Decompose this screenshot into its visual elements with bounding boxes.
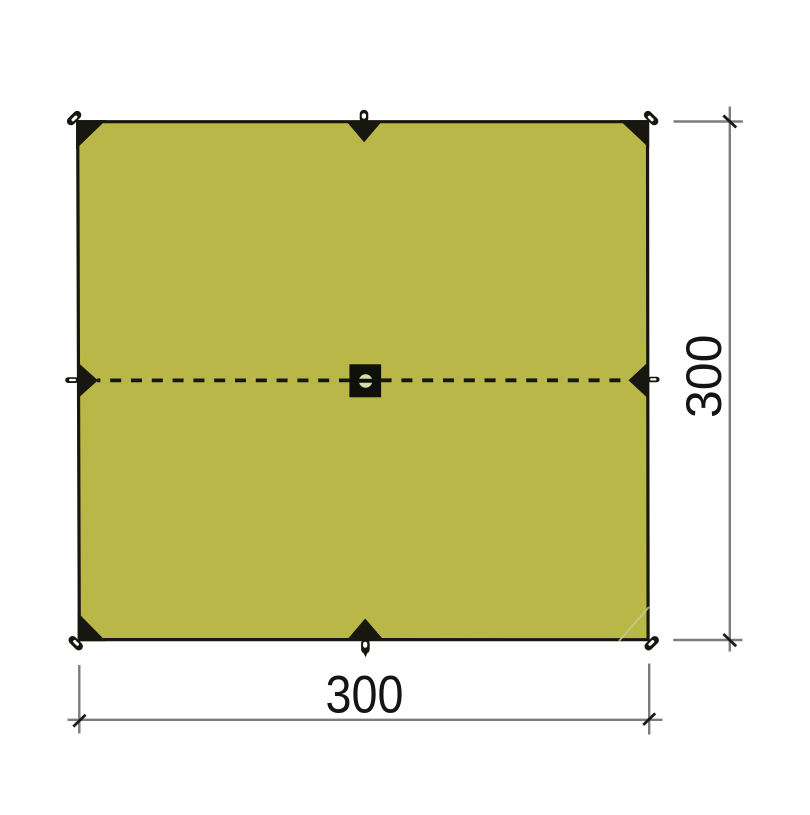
svg-text:300: 300 — [676, 335, 732, 418]
svg-text:300: 300 — [326, 666, 404, 725]
